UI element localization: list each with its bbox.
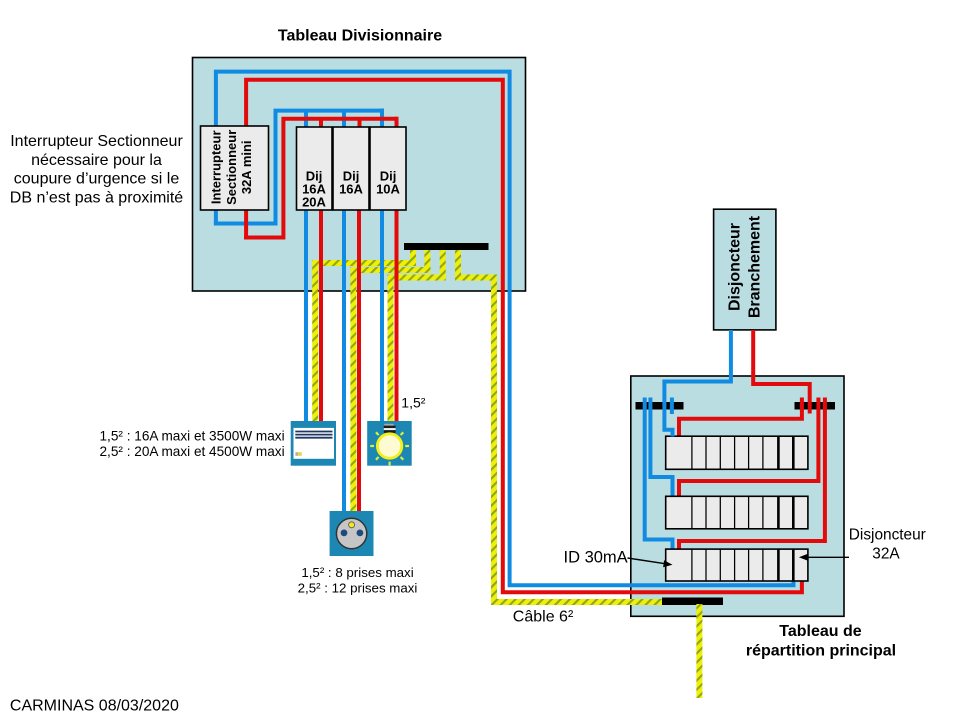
svg-text:2,5² : 20A maxi et 4500W maxi: 2,5² : 20A maxi et 4500W maxi <box>100 444 285 459</box>
svg-text:Branchement: Branchement <box>747 215 764 318</box>
svg-text:2,5² : 12 prises maxi: 2,5² : 12 prises maxi <box>298 581 418 596</box>
svg-text:Disjoncteur: Disjoncteur <box>849 527 926 544</box>
svg-text:ID 30mA: ID 30mA <box>564 549 628 567</box>
svg-text:répartition principal: répartition principal <box>746 642 896 659</box>
svg-text:1,5²: 1,5² <box>401 395 425 411</box>
svg-text:1,5² : 8 prises maxi: 1,5² : 8 prises maxi <box>301 565 413 580</box>
svg-text:16A: 16A <box>339 182 363 197</box>
svg-text:DB n’est pas à proximité: DB n’est pas à proximité <box>10 189 184 206</box>
svg-text:10A: 10A <box>376 182 400 197</box>
svg-text:1,5² : 16A maxi et 3500W maxi: 1,5² : 16A maxi et 3500W maxi <box>100 428 285 443</box>
svg-text:20A: 20A <box>302 195 326 210</box>
svg-text:coupure d’urgence si le: coupure d’urgence si le <box>14 171 180 188</box>
svg-text:Tableau Divisionnaire: Tableau Divisionnaire <box>278 28 442 45</box>
svg-text:CARMINAS 08/03/2020: CARMINAS 08/03/2020 <box>10 698 179 715</box>
svg-text:Tableau de: Tableau de <box>779 623 861 640</box>
svg-text:Câble 6²: Câble 6² <box>513 609 574 626</box>
svg-text:Interrupteur: Interrupteur <box>208 130 223 204</box>
svg-text:32A: 32A <box>872 545 900 562</box>
svg-text:nécessaire pour la: nécessaire pour la <box>31 152 162 169</box>
svg-text:Interrupteur Sectionneur: Interrupteur Sectionneur <box>10 133 183 150</box>
svg-text:Disjoncteur: Disjoncteur <box>727 223 744 311</box>
svg-text:32A mini: 32A mini <box>239 140 254 194</box>
svg-text:Sectionneur: Sectionneur <box>224 130 239 205</box>
